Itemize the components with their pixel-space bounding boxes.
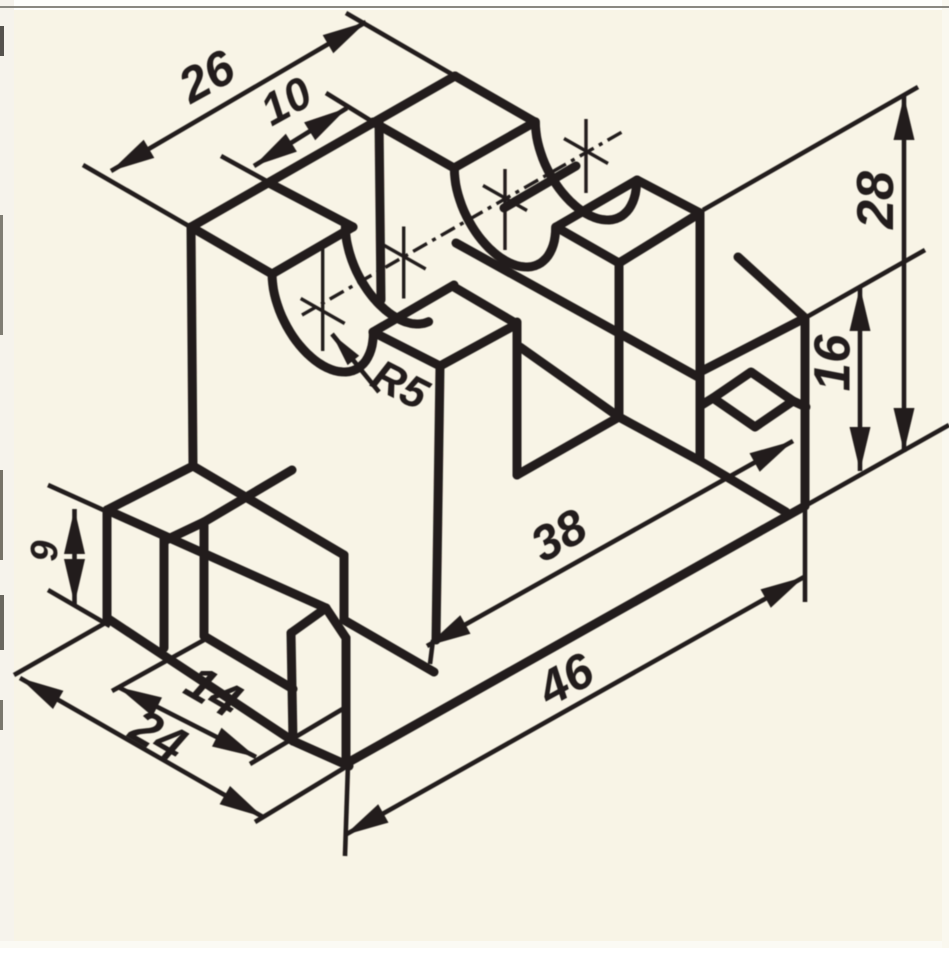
svg-text:16: 16 [804,334,861,391]
svg-text:9: 9 [24,540,66,561]
svg-text:28: 28 [847,171,905,230]
